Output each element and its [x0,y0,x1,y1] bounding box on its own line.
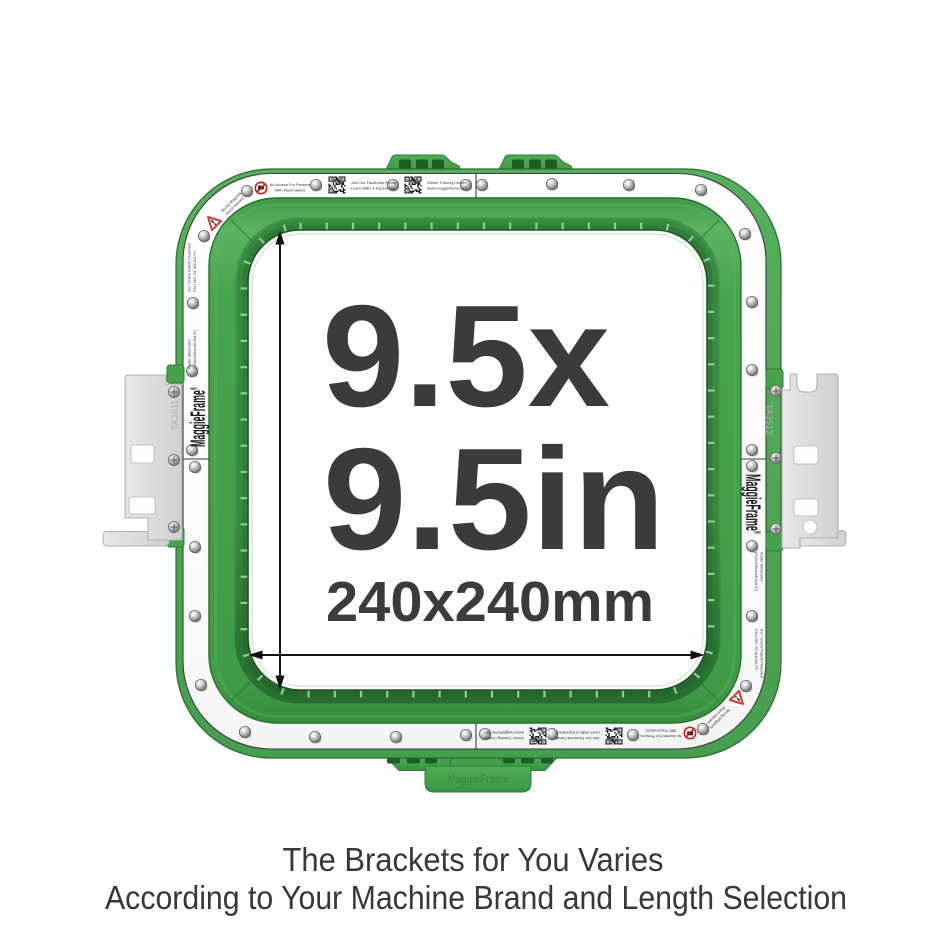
svg-text:The Brackets for You Varies: The Brackets for You Varies [283,841,664,878]
svg-text:No Access For PersonsWith Pace: No Access For PersonsWith Pacemakers [270,182,311,192]
svg-text:TA3512: TA3512 [764,404,774,435]
svg-text:9.5in: 9.5in [323,418,665,580]
svg-text:MaggieFrame®: MaggieFrame® [187,387,210,447]
svg-text:MaggieFrame: MaggieFrame [448,773,509,786]
svg-text:240x240mm: 240x240mm [326,570,654,634]
svg-text:Join Our Facebook FamilyLearn: Join Our Facebook FamilyLearn Skills & E… [351,180,396,190]
svg-text:Online Training Centerwww.magg: Online Training Centerwww.maggieframe.co… [427,180,467,190]
svg-text:According to Your Machine Bran: According to Your Machine Brand and Leng… [105,879,847,916]
svg-text:9.5x: 9.5x [322,275,610,437]
svg-text:TA3611: TA3611 [170,400,180,430]
